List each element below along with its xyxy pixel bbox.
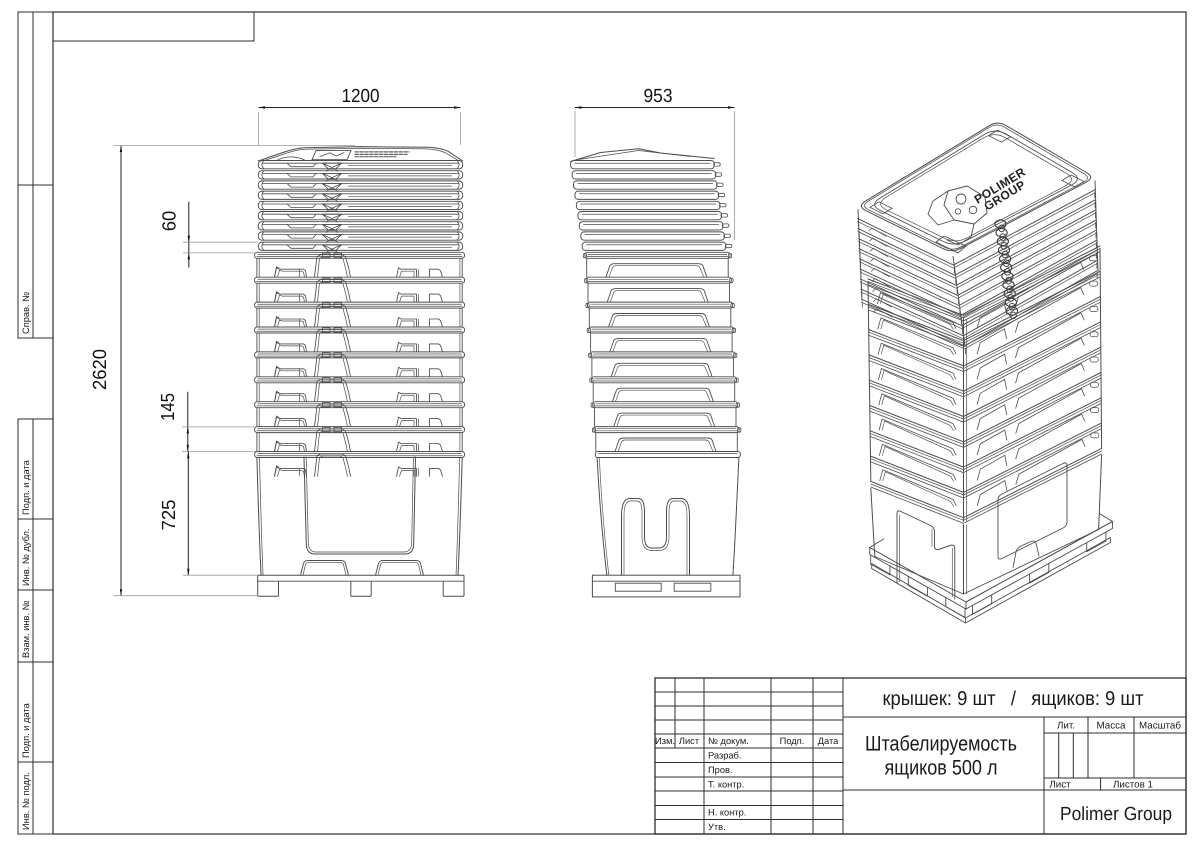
- svg-text:Лит.: Лит.: [1057, 721, 1075, 732]
- svg-text:725: 725: [159, 500, 180, 531]
- svg-text:145: 145: [158, 393, 179, 421]
- svg-text:Лист: Лист: [1049, 780, 1071, 791]
- svg-text:Масштаб: Масштаб: [1139, 721, 1181, 732]
- svg-text:Т. контр.: Т. контр.: [708, 780, 744, 790]
- svg-text:1200: 1200: [342, 86, 380, 107]
- svg-text:Инв. № подл.: Инв. № подл.: [21, 772, 31, 830]
- svg-text:Подп.: Подп.: [780, 736, 805, 746]
- svg-text:Инв. № дубл.: Инв. № дубл.: [21, 528, 31, 586]
- svg-text:Разраб.: Разраб.: [708, 751, 741, 761]
- svg-text:60: 60: [160, 211, 181, 232]
- svg-text:Пров.: Пров.: [708, 765, 733, 775]
- svg-text:Справ. №: Справ. №: [21, 292, 31, 334]
- svg-text:крышек: 9 шт / ящиков: 9 ш: крышек: 9 шт / ящиков: 9 шт: [883, 688, 1144, 710]
- svg-text:Лист: Лист: [679, 736, 700, 746]
- svg-text:Подп. и дата: Подп. и дата: [21, 702, 31, 758]
- svg-text:Polimer Group: Polimer Group: [1060, 804, 1172, 825]
- svg-text:Утв.: Утв.: [708, 822, 726, 832]
- svg-text:Листов 1: Листов 1: [1113, 780, 1153, 791]
- svg-text:Н. контр.: Н. контр.: [708, 808, 746, 818]
- svg-text:953: 953: [644, 86, 673, 107]
- svg-text:Взам. инв. №: Взам. инв. №: [21, 600, 31, 658]
- svg-text:Дата: Дата: [818, 736, 839, 746]
- svg-text:ящиков 500 л: ящиков 500 л: [885, 757, 998, 780]
- svg-text:Штабелируемость: Штабелируемость: [865, 733, 1017, 756]
- svg-text:2620: 2620: [90, 349, 111, 390]
- svg-text:Масса: Масса: [1097, 721, 1127, 732]
- svg-text:№ докум.: № докум.: [708, 736, 749, 746]
- svg-text:Подп. и дата: Подп. и дата: [21, 459, 31, 515]
- svg-text:Изм.: Изм.: [655, 736, 675, 746]
